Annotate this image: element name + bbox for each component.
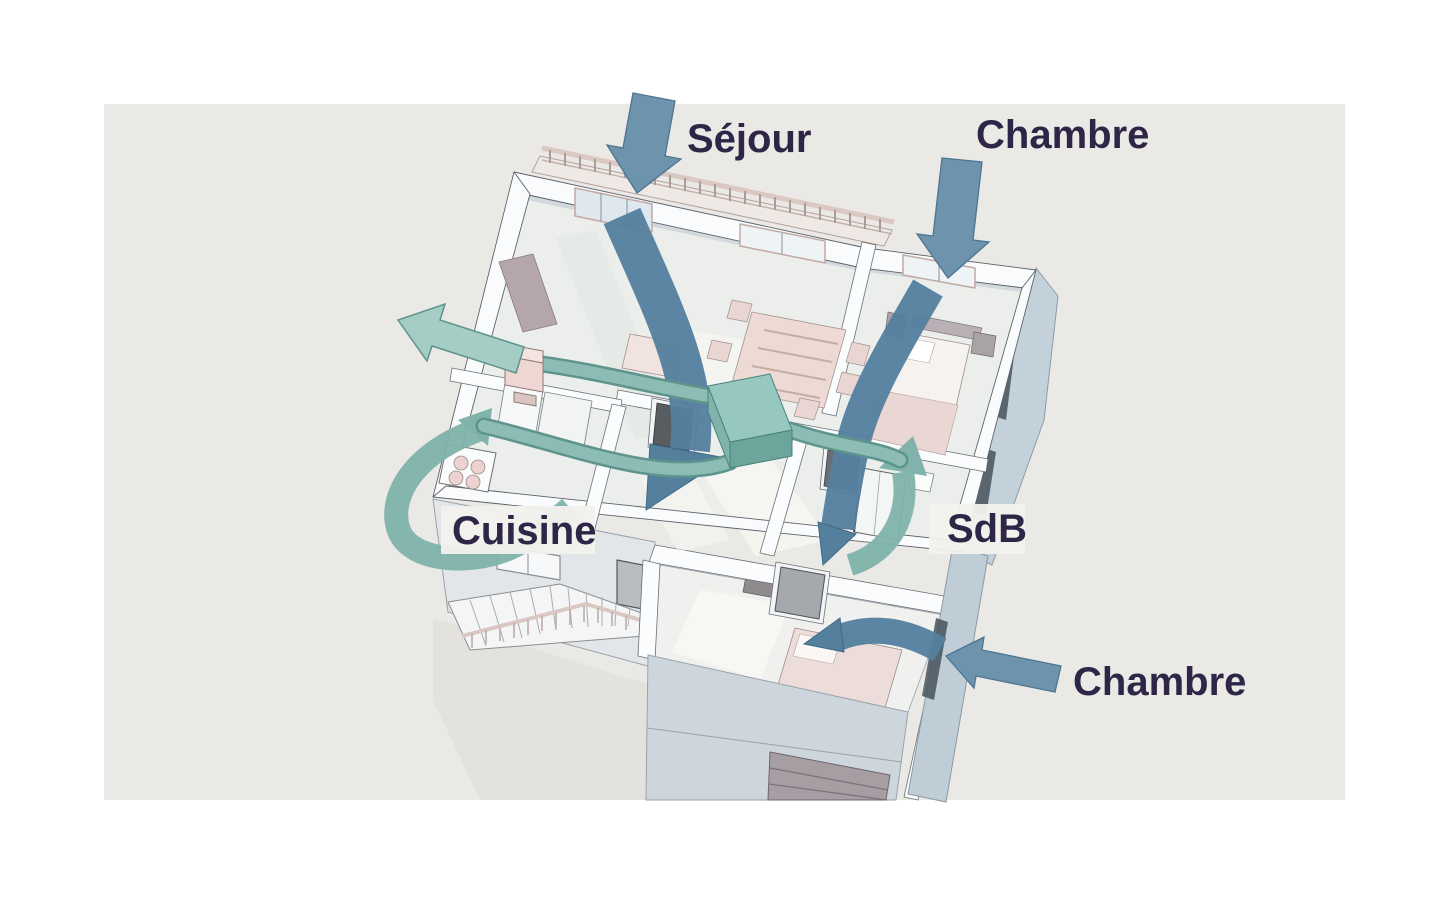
lower-bedroom-door bbox=[775, 567, 825, 619]
house-ventilation-illustration: Séjour Chambre Cuisine SdB Chambre bbox=[0, 0, 1448, 907]
room-label-sejour: Séjour bbox=[687, 117, 811, 161]
ventilation-diagram-page: Séjour Chambre Cuisine SdB Chambre bbox=[0, 0, 1448, 907]
room-label-chambre-bas: Chambre bbox=[1073, 660, 1246, 704]
room-label-chambre-haut: Chambre bbox=[976, 113, 1149, 157]
room-label-sdb: SdB bbox=[947, 507, 1027, 551]
room-label-cuisine: Cuisine bbox=[452, 509, 596, 553]
